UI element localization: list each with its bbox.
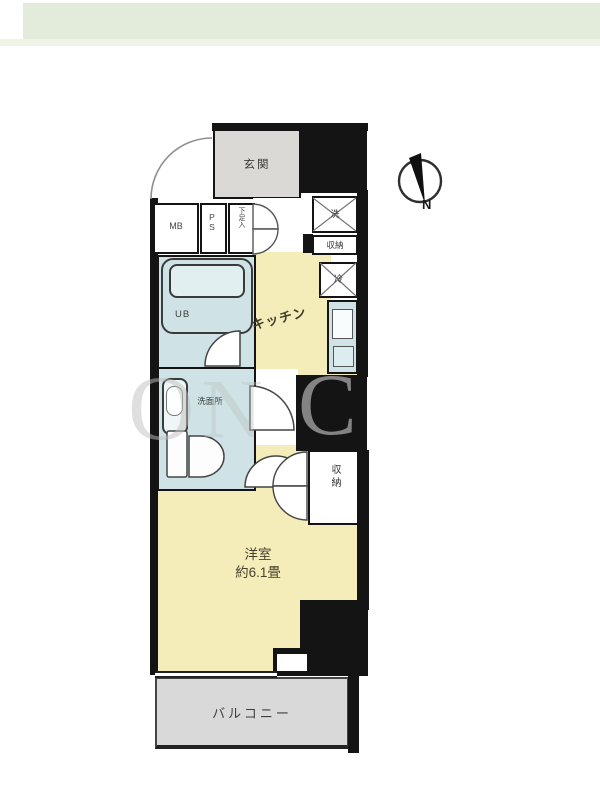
- entrance-door-arc: [151, 138, 212, 199]
- shoe-storage-label: 下足入: [236, 207, 246, 253]
- watermark-letter-c: C: [298, 362, 357, 450]
- compass-north-label: N: [422, 197, 431, 212]
- closet-door-bottom: [273, 486, 307, 520]
- pipe-space-label: PS: [207, 212, 217, 248]
- unit-bath-label: UB: [175, 309, 190, 320]
- meter-box-label: MB: [153, 221, 199, 231]
- western-room-size-label: 約6.1畳: [193, 561, 323, 581]
- entrance-label: 玄関: [213, 156, 301, 172]
- watermark-letter-o: O: [128, 362, 194, 454]
- bath-door-arc: [205, 331, 240, 366]
- watermark-letter-n: N: [202, 368, 263, 452]
- washer-label: 洗: [312, 207, 358, 220]
- room-closet-label: 収納: [327, 464, 342, 514]
- hall-door-leaf-bottom: [253, 229, 278, 254]
- compass: N: [399, 153, 441, 212]
- western-room-label: 洋室: [193, 543, 323, 563]
- hall-storage-label: 収納: [312, 239, 358, 251]
- floor-plan-page: N 玄関 MB PS 下足入 UB 洗面所 キッチン 洗 収納 冷 収納 洋室 …: [0, 0, 600, 800]
- hall-door-leaf-top: [253, 204, 278, 229]
- balcony-label: バルコニー: [155, 703, 349, 722]
- fridge-label: 冷: [319, 272, 358, 285]
